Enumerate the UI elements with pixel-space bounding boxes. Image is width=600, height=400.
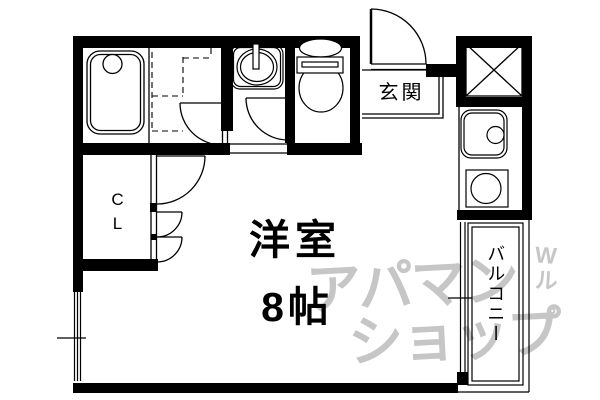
room-name-label: 洋室 [212, 206, 378, 266]
pipe-shaft-x-box [466, 44, 522, 96]
washer-pan-dashed [152, 48, 211, 131]
washbasin-door [246, 98, 288, 140]
kitchen-sink [461, 110, 507, 158]
entrance-label: 玄関 [360, 76, 443, 105]
floorplan-canvas: アパマン ショップ Wル゜ [0, 0, 600, 400]
room-size-label: 8帖 [212, 273, 382, 333]
balcony-label: バルコニー [484, 244, 505, 360]
closet-doors [157, 156, 205, 262]
entrance-door-swing [371, 9, 426, 64]
interior-doors [180, 98, 288, 145]
bathtub [87, 51, 144, 134]
left-window [75, 292, 81, 381]
stove [466, 170, 508, 207]
balcony-window [461, 222, 466, 382]
washbasin-vanity [231, 44, 283, 89]
toilet-fixture [297, 39, 343, 112]
closet-label: CL [107, 190, 127, 236]
washer-room-door [180, 103, 222, 145]
floorplan-drawing [0, 0, 600, 400]
